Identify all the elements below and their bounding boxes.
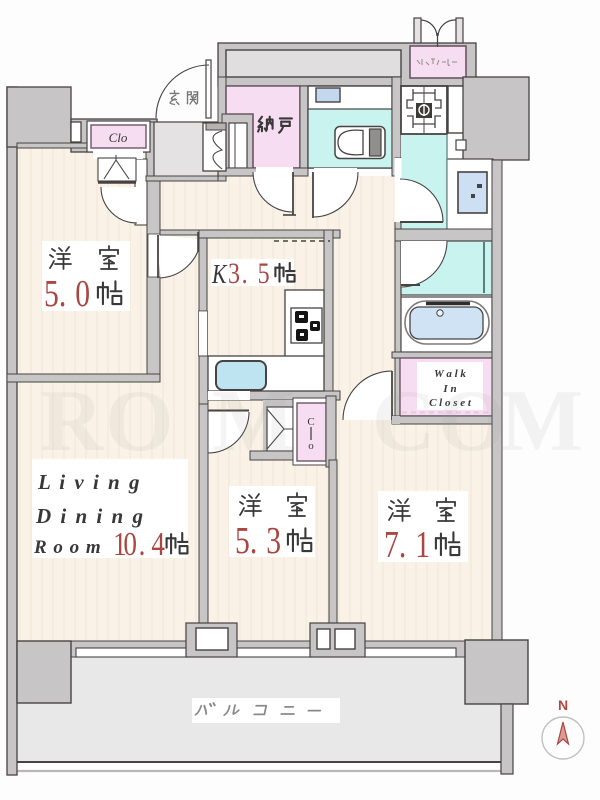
svg-text:R o o m: R o o m — [33, 537, 102, 558]
svg-text:O: O — [105, 373, 173, 470]
svg-text:.: . — [59, 274, 66, 315]
svg-text:3: 3 — [266, 521, 281, 562]
svg-text:N: N — [558, 697, 568, 713]
svg-text:O: O — [438, 373, 506, 470]
svg-text:M: M — [212, 373, 295, 470]
svg-text:4: 4 — [151, 525, 165, 563]
svg-text:C: C — [372, 373, 436, 470]
svg-text:.: . — [399, 525, 406, 566]
svg-text:.: . — [242, 256, 248, 289]
svg-text:0: 0 — [75, 274, 90, 315]
svg-text:1: 1 — [415, 525, 430, 566]
svg-text:0: 0 — [123, 525, 137, 563]
svg-text:7: 7 — [384, 525, 399, 566]
svg-text:L i v i n g: L i v i n g — [37, 470, 141, 494]
svg-text:K: K — [211, 260, 228, 290]
svg-text:.: . — [250, 521, 257, 562]
svg-text:o: o — [308, 440, 314, 452]
svg-text:C: C — [307, 416, 314, 428]
svg-text:Clo: Clo — [109, 130, 128, 145]
svg-text:5: 5 — [235, 521, 250, 562]
svg-text:5: 5 — [44, 274, 59, 315]
svg-text:R: R — [40, 373, 105, 470]
svg-text:5: 5 — [258, 256, 270, 289]
svg-text:M: M — [500, 373, 583, 470]
svg-text:.: . — [139, 525, 146, 563]
svg-text:3: 3 — [228, 256, 240, 289]
